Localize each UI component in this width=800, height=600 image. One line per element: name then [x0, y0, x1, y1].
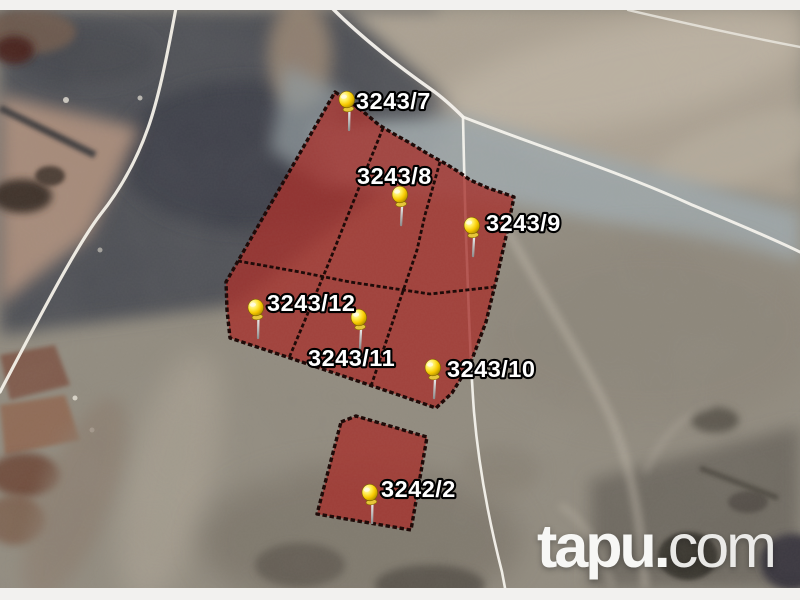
- parcel-label-3243-11: 3243/11: [308, 345, 395, 371]
- frame-strip-bottom: [0, 588, 800, 600]
- frame-strip-top: [0, 0, 800, 10]
- parcel-label-3243-10: 3243/10: [447, 356, 535, 382]
- parcel-label-3243-7: 3243/7: [356, 88, 431, 114]
- satellite-map: 3243/7 3243/8 3243/9 3243/12 3243/11 324…: [0, 0, 800, 600]
- watermark-logo: tapu.com: [537, 516, 774, 577]
- map-canvas: 3243/7 3243/8 3243/9 3243/12 3243/11 324…: [0, 0, 800, 600]
- parcel-label-3242-2: 3242/2: [381, 476, 456, 502]
- parcel-label-3243-12: 3243/12: [267, 290, 355, 316]
- parcel-label-3243-8: 3243/8: [357, 163, 432, 189]
- watermark-brand-bold: tapu.: [537, 512, 668, 580]
- parcel-label-3243-9: 3243/9: [486, 210, 561, 236]
- watermark-brand-light: com: [668, 512, 774, 580]
